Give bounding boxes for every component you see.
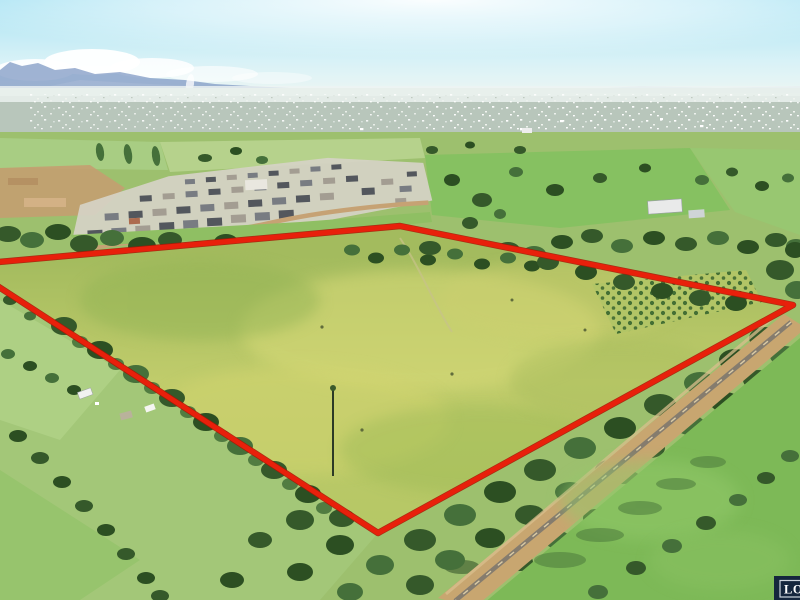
scene-canvas: LO (0, 0, 800, 600)
terracotta-roof (129, 218, 140, 225)
grey-shed (688, 209, 705, 218)
watermark-text: LO (784, 583, 800, 597)
watermark: LO (774, 576, 800, 600)
aerial-property-photo: LO (0, 0, 800, 600)
white-barn (648, 199, 683, 214)
white-speck (95, 402, 99, 405)
small-white-shed (522, 128, 532, 133)
large-white-roof (245, 179, 267, 190)
